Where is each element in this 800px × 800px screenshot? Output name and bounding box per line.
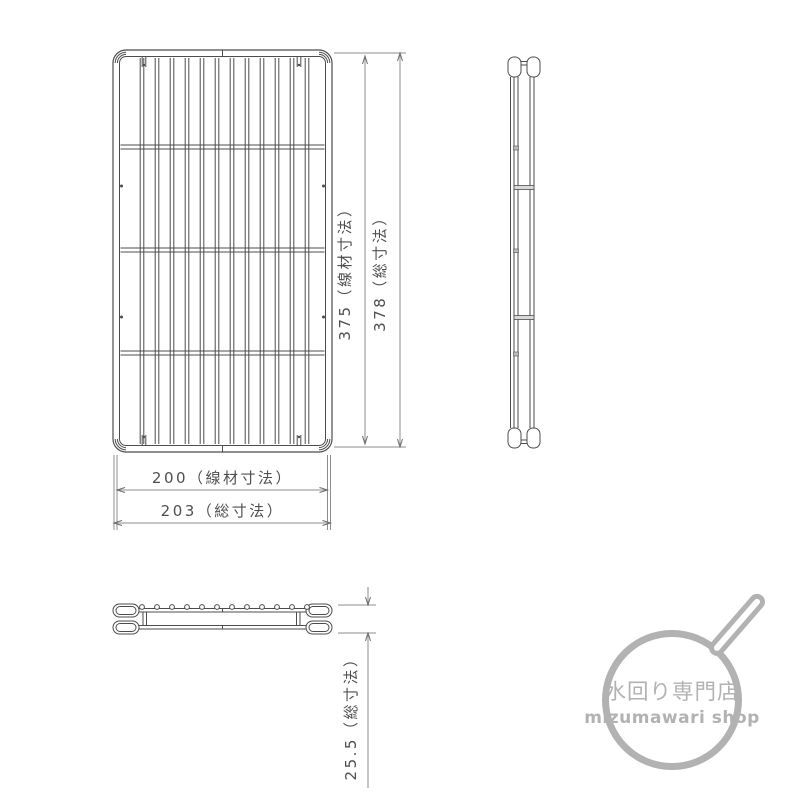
dimension-label-height-wire: 375（線材寸法）	[336, 199, 354, 340]
side-cap-connectors	[521, 62, 527, 444]
bottom-cap	[306, 604, 332, 617]
logo-title-jp: 水回り専門店	[604, 680, 739, 705]
bottom-cap	[306, 621, 332, 634]
side-cap-top-left	[508, 57, 521, 77]
hook-dot	[298, 436, 300, 438]
weld-dot	[322, 185, 325, 188]
side-cap-bottom-right	[527, 428, 540, 448]
dimension-label-height-total: 378（総寸法）	[371, 208, 389, 332]
dimension-width: 200（線材寸法） 203（総寸法）	[114, 455, 331, 530]
crossbar-section	[514, 249, 519, 253]
dimension-height: 375（線材寸法） 378（総寸法）	[334, 53, 406, 447]
watermark-logo: 水回り専門店 mizumawari shop	[584, 594, 765, 766]
crossbar-section	[514, 146, 519, 150]
weld-dot	[322, 316, 325, 319]
side-connector	[514, 186, 534, 190]
hook-dot	[298, 64, 300, 66]
frame-inner	[120, 57, 326, 446]
corner-arcs	[115, 52, 330, 450]
vertical-wires	[140, 58, 309, 444]
dimension-label-width-wire: 200（線材寸法）	[152, 469, 293, 487]
extension-lines-depth	[338, 605, 376, 633]
dimension-depth: 25.5（総寸法）	[338, 587, 376, 788]
hook-dot	[143, 64, 145, 66]
logo-subtitle-en: mizumawari shop	[584, 708, 760, 728]
bottom-rails	[139, 609, 306, 630]
weld-dot	[120, 316, 123, 319]
side-connector	[514, 316, 534, 320]
frame-outer	[113, 50, 332, 452]
hook-posts	[142, 50, 301, 452]
weld-dot	[120, 185, 123, 188]
drawing-page: 375（線材寸法） 378（総寸法） 200（線材寸法） 203（総寸法） 25…	[0, 0, 800, 800]
hook-dot	[143, 436, 145, 438]
dimension-arrows-depth	[366, 597, 371, 641]
dimension-label-depth-total: 25.5（総寸法）	[342, 650, 360, 781]
technical-drawing: 375（線材寸法） 378（総寸法） 200（線材寸法） 203（総寸法） 25…	[0, 0, 800, 800]
bottom-cap	[113, 621, 139, 634]
logo-handle-icon	[709, 594, 765, 656]
bottom-cap	[113, 604, 139, 617]
crossbar-section	[514, 352, 519, 356]
side-view	[508, 57, 540, 448]
front-view	[113, 50, 332, 452]
dimension-label-width-total: 203（総寸法）	[161, 502, 285, 520]
side-cap-top-right	[527, 57, 540, 77]
side-cap-bottom-left	[508, 428, 521, 448]
bottom-view	[113, 604, 332, 634]
